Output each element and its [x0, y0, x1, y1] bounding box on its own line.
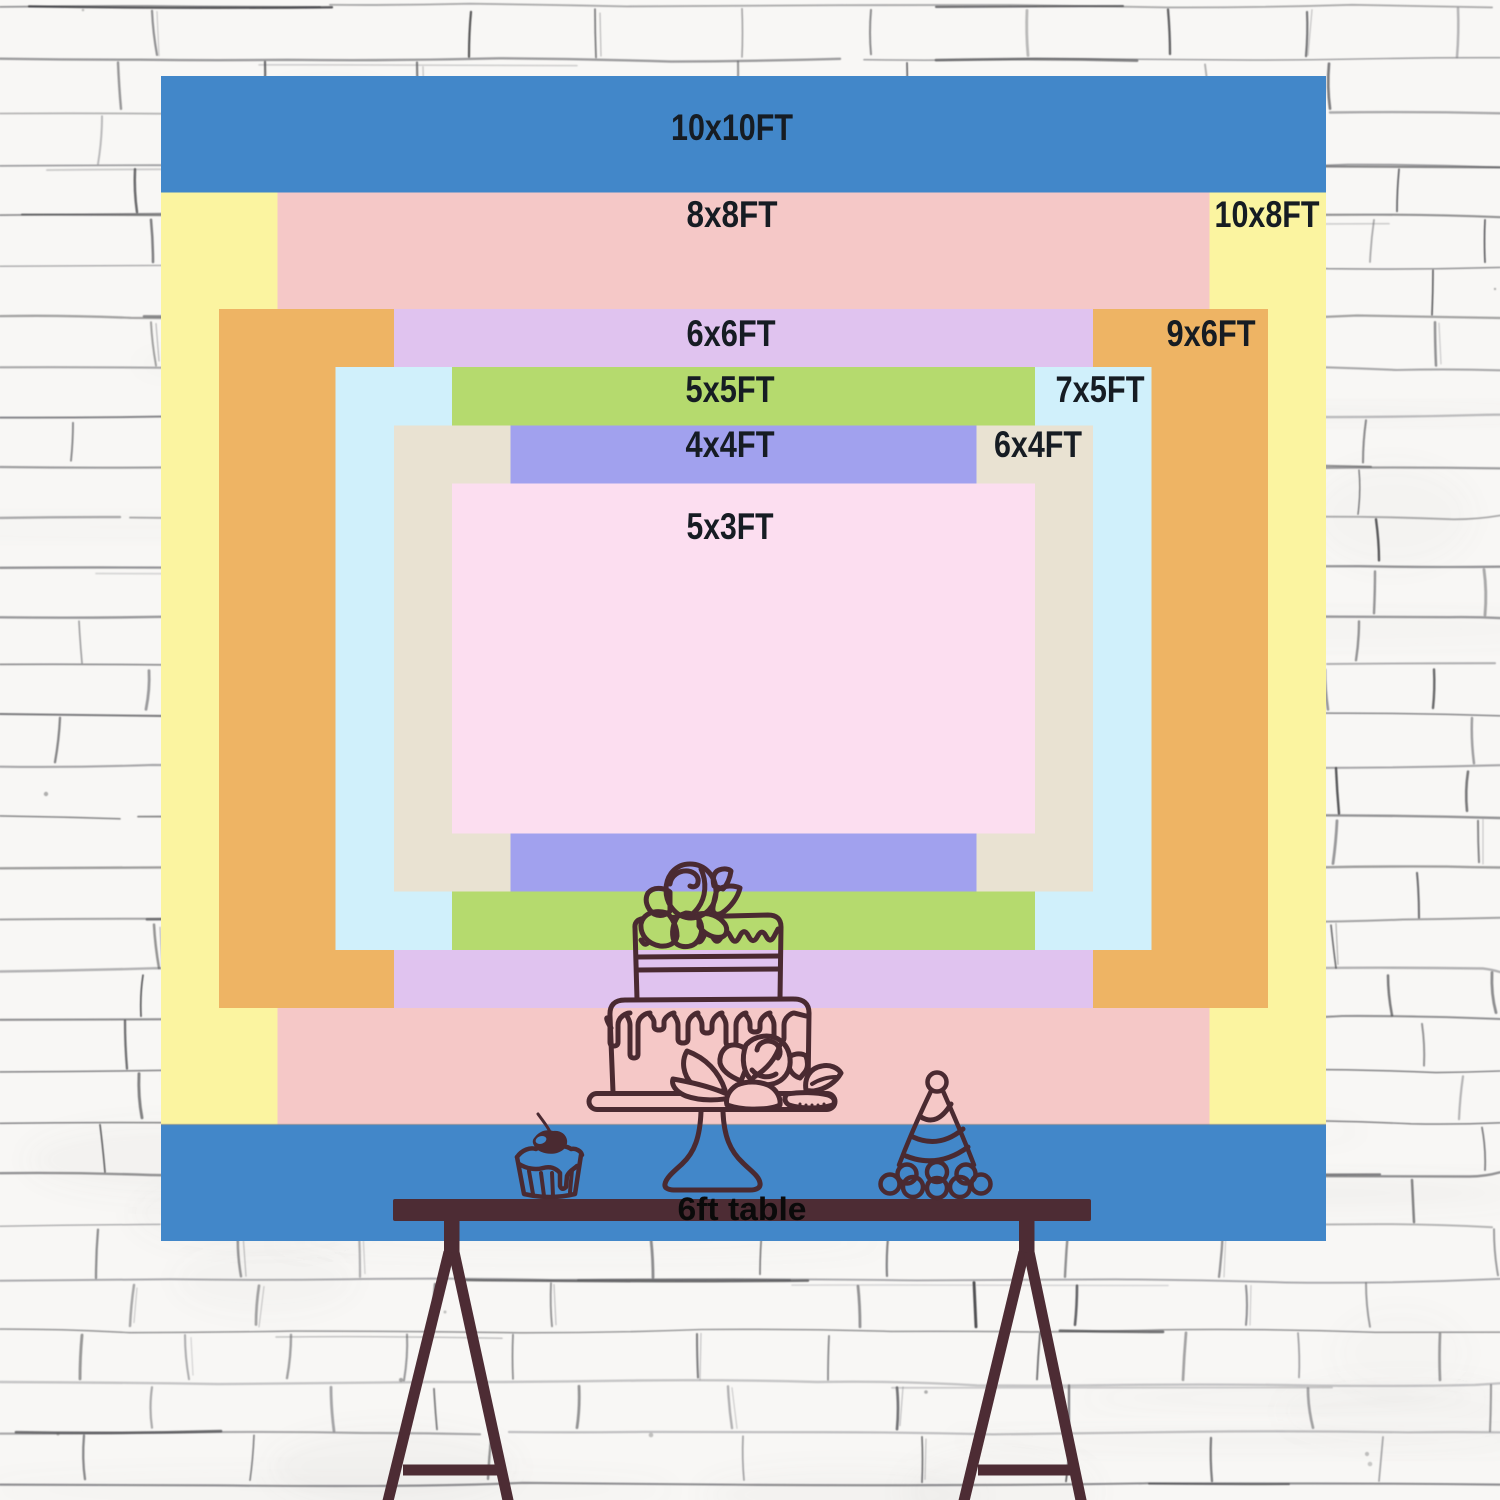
svg-text:4x4FT: 4x4FT — [686, 424, 775, 465]
svg-text:9x6FT: 9x6FT — [1167, 313, 1256, 354]
svg-text:7x5FT: 7x5FT — [1056, 369, 1145, 410]
svg-text:6x6FT: 6x6FT — [687, 313, 776, 354]
svg-text:6ft table: 6ft table — [678, 1191, 807, 1227]
svg-text:5x5FT: 5x5FT — [686, 369, 775, 410]
svg-text:6x4FT: 6x4FT — [994, 424, 1082, 465]
svg-text:8x8FT: 8x8FT — [687, 194, 778, 235]
svg-text:10x8FT: 10x8FT — [1215, 194, 1320, 235]
svg-text:10x10FT: 10x10FT — [671, 107, 793, 148]
svg-text:5x3FT: 5x3FT — [687, 506, 774, 547]
